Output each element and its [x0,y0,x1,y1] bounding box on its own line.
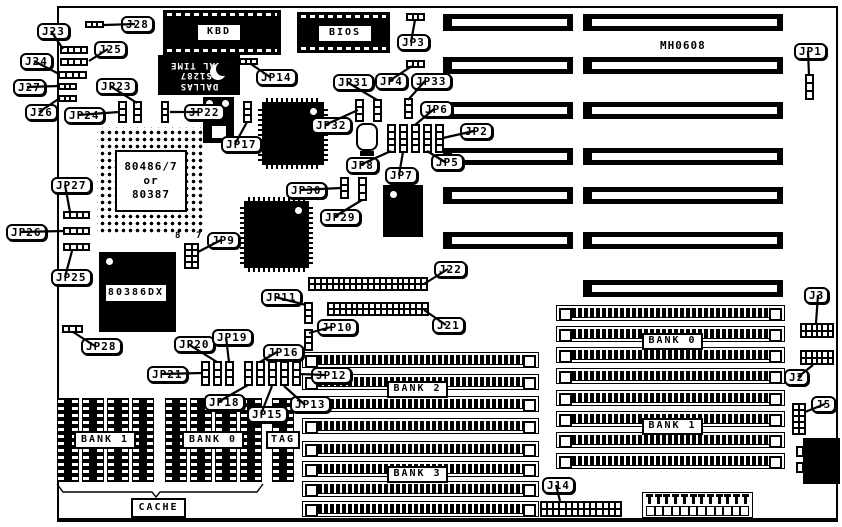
jumper-jp30 [340,177,349,199]
crystal-oscillator [356,123,378,151]
dallas-rtc-text: DALLASDS1287REAL TIME [158,55,240,95]
callout-jp5: JP5 [431,154,464,171]
jumper-jp13 [280,361,289,386]
bank0-cache-label: BANK 0 [182,431,244,449]
simm-socket-right_group-1 [556,305,785,321]
callout-j23: J23 [37,23,70,40]
callout-j5: J5 [811,396,836,413]
callout-jp31: JP31 [333,74,374,91]
isa-slot-left-3 [443,102,573,119]
callout-jp2: JP2 [460,123,493,140]
simm-socket-right_group-8 [556,453,785,469]
jumper-jp26 [63,227,90,235]
callout-jp32: JP32 [311,117,352,134]
callout-j14: J14 [542,477,575,494]
callout-jp13: JP13 [290,396,331,413]
isa-slot-right-5 [583,187,783,204]
callout-jp22: JP22 [184,104,225,121]
jumper-jp20 [213,361,222,386]
jumper-jp7 [399,124,408,153]
keyboard-din-connector [803,438,840,484]
callout-j24: J24 [20,53,53,70]
dallas-rtc-chip: DALLASDS1287REAL TIME [158,55,240,95]
component-layer: MH060887DALLASDS1287REAL TIMEKBDBIOS8048… [0,0,842,527]
header-j2 [800,350,834,365]
jumper-jp17 [243,101,252,123]
jumper-jp16 [256,361,265,386]
jumper-j27 [58,83,77,90]
jumper-jp5 [423,124,432,153]
header-j21 [327,302,429,316]
simm-socket-left_group-4 [302,418,539,434]
callout-jp25: JP25 [51,269,92,286]
jumper-jp1 [805,74,814,100]
cache-label: CACHE [131,498,186,518]
board-model-text: MH0608 [660,39,706,52]
simm-socket-left_group-8 [302,501,539,517]
jumper-j26 [58,95,77,102]
callout-jp17: JP17 [221,136,262,153]
callout-j25: J25 [94,41,127,58]
jumper-jp24 [118,101,127,123]
callout-jp30: JP30 [286,182,327,199]
callout-j27: J27 [13,79,46,96]
jumper-jp19 [225,361,234,386]
jumper-jp27 [63,211,90,219]
bank1-simm-label: BANK 1 [642,418,703,435]
chipset-qfp-1-pins-top [266,98,320,102]
isa-slot-right-6 [583,232,783,249]
bank2-label: BANK 2 [387,381,448,398]
callout-jp7: JP7 [385,167,418,184]
jumper-j23 [60,46,88,54]
simm-socket-left_group-7 [302,481,539,497]
callout-jp1: JP1 [794,43,827,60]
jumper-j24 [58,71,87,79]
callout-jp23: JP23 [96,78,137,95]
bios-label: BIOS [317,24,373,43]
callout-j3: J3 [804,287,829,304]
jumper-jp8 [387,124,396,153]
isa-slot-right-3 [583,102,783,119]
chipset-qfp-2-pins-left [240,205,244,264]
ic-below-jp7 [383,185,423,237]
simm-socket-left_group-5 [302,441,539,457]
crystal-base [360,151,374,156]
callout-j2: J2 [784,369,809,386]
callout-jp20: JP20 [174,336,215,353]
isa-slot-right-7 [583,280,783,297]
jumper-jp21 [201,361,210,386]
simm-socket-right_group-5 [556,390,785,406]
callout-jp4: JP4 [375,73,408,90]
chipset-qfp-2-pins-right [309,205,313,264]
callout-jp6: JP6 [420,101,453,118]
jumper-jp11 [304,302,313,324]
bank0-simm-label: BANK 0 [642,333,703,350]
isa-slot-left-2 [443,57,573,74]
callout-jp27: JP27 [51,177,92,194]
jumper-jp18 [244,361,253,386]
kbd-label: KBD [196,23,242,42]
callout-jp18: JP18 [204,394,245,411]
jumper-jp2 [435,124,444,153]
jp9-pin8-text: 8 [175,231,181,241]
chipset-qfp-1-pins-left [258,106,262,161]
isa-slot-left-5 [443,187,573,204]
bank1-cache-label: BANK 1 [74,431,136,449]
header-j5 [792,403,806,435]
jumper-jp32 [355,99,364,122]
jumper-jp29 [358,177,367,201]
power-connector [642,492,753,518]
callout-jp8: JP8 [346,157,379,174]
jumper-jp3 [406,13,425,21]
jumper-jp28 [62,325,83,333]
motherboard-diagram: MH060887DALLASDS1287REAL TIMEKBDBIOS8048… [0,0,842,527]
chipset-qfp-2 [244,201,309,268]
jumper-j25 [60,58,88,66]
callout-j28: J28 [121,16,154,33]
callout-jp14: JP14 [256,69,297,86]
cpu-386-label: 80386DX [104,283,168,303]
callout-jp21: JP21 [147,366,188,383]
header-j14 [540,501,622,517]
jumper-jp33 [404,98,413,119]
tag-label: TAG [266,431,300,449]
callout-jp10: JP10 [317,319,358,336]
jumper-jp25 [63,243,90,251]
simm-socket-left_group-1 [302,352,539,368]
callout-jp16: JP16 [263,344,304,361]
callout-j21: J21 [432,317,465,334]
isa-slot-left-6 [443,232,573,249]
callout-jp3: JP3 [397,34,430,51]
callout-jp29: JP29 [320,209,361,226]
jumper-jp6 [411,124,420,153]
cpu-socket-label: 80486/7or80387 [115,150,187,212]
simm-socket-right_group-4 [556,368,785,384]
callout-jp15: JP15 [247,406,288,423]
isa-slot-left-1 [443,14,573,31]
jumper-jp31 [373,99,382,122]
jumper-jp12 [292,361,301,386]
callout-jp11: JP11 [261,289,302,306]
simm-socket-left_group-3 [302,396,539,412]
header-j3 [800,323,834,338]
jumper-jp23 [133,101,142,123]
jumper-jp14 [239,58,258,65]
jumper-jp22 [161,101,169,123]
isa-slot-right-1 [583,14,783,31]
jumper-jp10 [304,329,313,351]
callout-jp9: JP9 [207,232,240,249]
bank3-label: BANK 3 [387,466,448,483]
callout-jp24: JP24 [64,107,105,124]
jp9-pin7-text: 7 [196,231,202,241]
chipset-qfp-1-pins-bottom [266,165,320,169]
header-j22 [308,277,428,291]
callout-j26: J26 [25,104,58,121]
jumper-jp4 [406,60,425,68]
jumper-j28 [85,21,104,28]
callout-jp28: JP28 [81,338,122,355]
callout-jp33: JP33 [411,73,452,90]
isa-slot-right-2 [583,57,783,74]
isa-slot-right-4 [583,148,783,165]
jumper-jp15 [268,361,277,386]
callout-jp12: JP12 [311,367,352,384]
callout-jp19: JP19 [212,329,253,346]
callout-j22: J22 [434,261,467,278]
callout-jp26: JP26 [6,224,47,241]
chipset-qfp-2-pins-bottom [248,268,305,272]
jumper-block-jp9 [184,243,199,269]
